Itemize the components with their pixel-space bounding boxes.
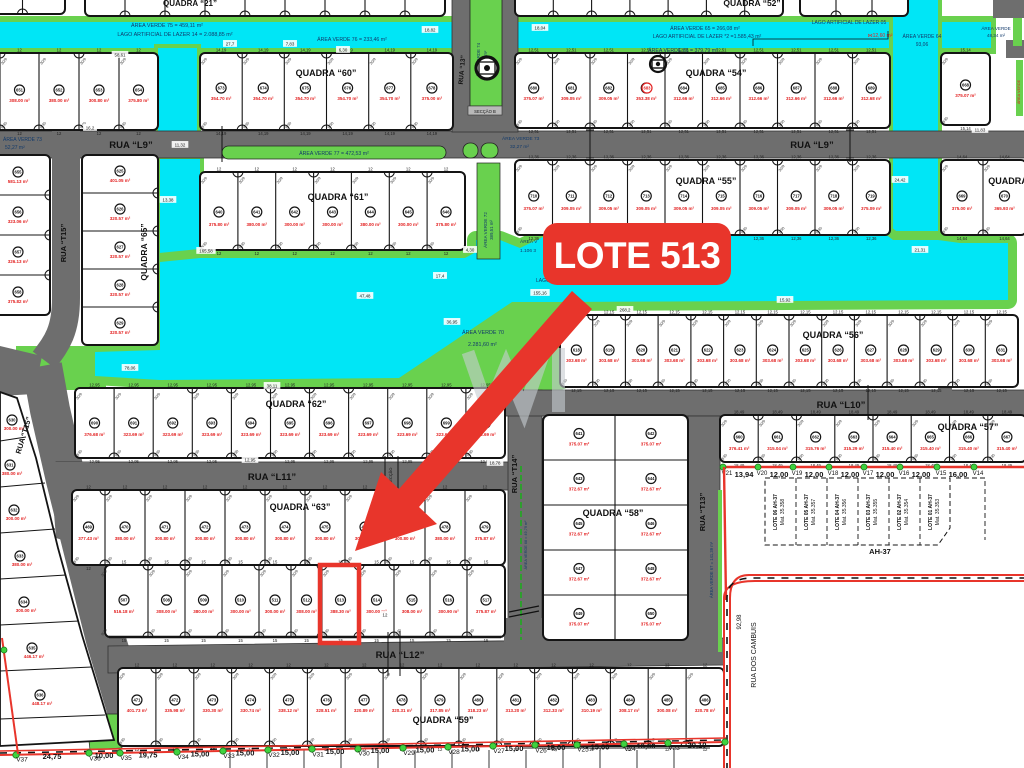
svg-text:308.17 m²: 308.17 m² [619, 708, 640, 713]
svg-text:58,61: 58,61 [115, 53, 127, 58]
svg-text:15: 15 [238, 638, 243, 643]
svg-text:625: 625 [802, 348, 810, 353]
svg-text:300.00 m²: 300.00 m² [322, 222, 343, 227]
svg-text:646: 646 [648, 521, 656, 526]
svg-text:380.00 m²: 380.00 m² [435, 536, 456, 541]
svg-text:323.69 m²: 323.69 m² [319, 432, 340, 437]
svg-text:QUADRA “52”: QUADRA “52” [723, 0, 780, 8]
svg-text:693: 693 [208, 421, 216, 426]
svg-text:155,16: 155,16 [533, 291, 547, 296]
svg-text:315.40 m²: 315.40 m² [997, 446, 1018, 451]
svg-text:12,51: 12,51 [754, 48, 765, 53]
svg-text:12: 12 [203, 485, 208, 490]
svg-text:323.69 m²: 323.69 m² [397, 432, 418, 437]
svg-text:12: 12 [665, 663, 670, 668]
svg-text:303.68 m²: 303.68 m² [828, 358, 849, 363]
svg-text:LAGO ARTIFICIAL DE LAZER *2 =1: LAGO ARTIFICIAL DE LAZER *2 =1.585,43 m² [653, 34, 762, 40]
svg-text:300.80 m²: 300.80 m² [315, 536, 336, 541]
svg-text:QUADRA “57”: QUADRA “57” [938, 422, 999, 432]
svg-text:643: 643 [329, 210, 337, 215]
svg-text:479: 479 [436, 698, 444, 703]
svg-text:312.33 m²: 312.33 m² [543, 708, 564, 713]
svg-text:644: 644 [648, 476, 656, 481]
svg-text:372.67 m²: 372.67 m² [569, 532, 590, 537]
svg-text:12,95: 12,95 [128, 459, 139, 464]
svg-text:12: 12 [324, 663, 329, 668]
svg-text:303.68 m²: 303.68 m² [762, 358, 783, 363]
svg-text:12,15: 12,15 [964, 388, 975, 393]
svg-text:470: 470 [122, 525, 130, 530]
svg-text:681: 681 [568, 86, 576, 91]
svg-text:12: 12 [57, 131, 62, 136]
svg-text:300.80 m²: 300.80 m² [235, 536, 256, 541]
svg-text:517: 517 [483, 598, 491, 603]
svg-text:12,36: 12,36 [791, 155, 802, 160]
svg-text:372.67 m²: 372.67 m² [641, 577, 662, 582]
svg-text:12,15: 12,15 [800, 310, 811, 315]
svg-text:635: 635 [29, 646, 37, 651]
svg-text:300.80 m²: 300.80 m² [155, 536, 176, 541]
svg-text:300.00 m²: 300.00 m² [230, 609, 251, 614]
svg-text:12,36: 12,36 [866, 236, 877, 241]
svg-text:641: 641 [576, 431, 584, 436]
svg-text:12: 12 [217, 167, 222, 172]
svg-text:716: 716 [755, 194, 763, 199]
svg-text:12: 12 [627, 663, 632, 668]
svg-text:18,49: 18,49 [734, 410, 745, 415]
svg-text:320.57 m²: 320.57 m² [110, 216, 131, 221]
svg-text:12: 12 [17, 48, 22, 53]
svg-text:Mat. 35.355: Mat. 35.355 [873, 499, 879, 526]
svg-text:309.05 m²: 309.05 m² [748, 206, 769, 211]
svg-text:718: 718 [830, 194, 838, 199]
svg-text:472: 472 [171, 698, 179, 703]
svg-text:365.93 m²: 365.93 m² [994, 206, 1015, 211]
svg-text:10,00: 10,00 [95, 751, 114, 760]
svg-text:683: 683 [644, 86, 652, 91]
svg-text:315.40 m²: 315.40 m² [882, 446, 903, 451]
svg-text:713: 713 [643, 194, 651, 199]
svg-text:300.80 m²: 300.80 m² [89, 98, 110, 103]
svg-text:309.05 m²: 309.05 m² [711, 206, 732, 211]
svg-text:632: 632 [11, 508, 19, 513]
svg-text:645: 645 [405, 210, 413, 215]
svg-text:315.04 m²: 315.04 m² [767, 446, 788, 451]
svg-text:15: 15 [164, 560, 169, 565]
svg-text:323.69 m²: 323.69 m² [123, 432, 144, 437]
svg-text:375.87 m²: 375.87 m² [476, 609, 497, 614]
svg-text:485: 485 [664, 698, 672, 703]
svg-text:12,95: 12,95 [168, 383, 179, 388]
svg-text:V24: V24 [624, 746, 636, 753]
svg-text:653: 653 [96, 88, 104, 93]
svg-text:12,51: 12,51 [866, 129, 877, 134]
svg-text:12,95: 12,95 [402, 459, 413, 464]
svg-text:513: 513 [337, 598, 345, 603]
svg-text:677: 677 [386, 86, 394, 91]
svg-text:380.00 m²: 380.00 m² [2, 471, 23, 476]
svg-text:15,14: 15,14 [960, 48, 971, 53]
svg-text:512: 512 [303, 598, 311, 603]
svg-text:18,49: 18,49 [925, 410, 936, 415]
svg-text:328.51 m²: 328.51 m² [316, 708, 337, 713]
svg-text:V31: V31 [312, 751, 324, 758]
svg-text:V32: V32 [268, 752, 280, 759]
svg-text:630: 630 [965, 348, 973, 353]
svg-text:12: 12 [57, 48, 62, 53]
svg-text:15: 15 [304, 560, 309, 565]
svg-text:12: 12 [254, 251, 259, 256]
svg-text:482: 482 [550, 698, 558, 703]
svg-text:⋈12,60 m²: ⋈12,60 m² [868, 33, 893, 39]
svg-text:308.00 m²: 308.00 m² [296, 609, 317, 614]
svg-text:338.12 m²: 338.12 m² [278, 708, 299, 713]
svg-text:690: 690 [91, 421, 99, 426]
svg-text:323.69 m²: 323.69 m² [202, 432, 223, 437]
svg-text:15: 15 [122, 560, 127, 565]
svg-text:12: 12 [286, 663, 291, 668]
svg-text:12,36: 12,36 [866, 155, 877, 160]
svg-text:V23: V23 [668, 745, 680, 752]
svg-text:12,51: 12,51 [866, 48, 877, 53]
svg-text:388.30 m²: 388.30 m² [330, 609, 351, 614]
svg-text:688: 688 [830, 86, 838, 91]
svg-text:655: 655 [15, 170, 23, 175]
svg-text:12: 12 [163, 485, 168, 490]
svg-text:12: 12 [362, 663, 367, 668]
svg-text:12: 12 [330, 167, 335, 172]
svg-text:665: 665 [927, 435, 935, 440]
svg-text:12: 12 [406, 167, 411, 172]
svg-text:656: 656 [15, 210, 23, 215]
svg-text:92,98: 92,98 [737, 614, 743, 630]
svg-text:14,19: 14,19 [300, 48, 311, 53]
svg-text:V17: V17 [863, 471, 874, 477]
svg-text:12,15: 12,15 [767, 310, 778, 315]
svg-text:12,15: 12,15 [833, 310, 844, 315]
svg-text:509: 509 [200, 598, 208, 603]
svg-text:12: 12 [330, 251, 335, 256]
svg-text:12,15: 12,15 [735, 310, 746, 315]
svg-text:320.57 m²: 320.57 m² [110, 254, 131, 259]
svg-text:12,36: 12,36 [829, 236, 840, 241]
svg-text:QUADRA “56”: QUADRA “56” [803, 330, 864, 340]
svg-text:669: 669 [959, 194, 967, 199]
svg-text:474: 474 [282, 525, 290, 530]
svg-text:14,19: 14,19 [216, 48, 227, 53]
svg-text:712: 712 [605, 194, 613, 199]
svg-text:12: 12 [383, 613, 388, 618]
svg-text:12,15: 12,15 [866, 310, 877, 315]
svg-text:15,00: 15,00 [191, 749, 210, 758]
svg-text:18,78: 18,78 [490, 461, 502, 466]
svg-text:12,51: 12,51 [529, 129, 540, 134]
svg-text:Mat. 35.354: Mat. 35.354 [904, 499, 910, 526]
svg-text:12,36: 12,36 [641, 155, 652, 160]
svg-text:643: 643 [576, 476, 584, 481]
svg-text:12,15: 12,15 [669, 310, 680, 315]
svg-text:480: 480 [474, 698, 482, 703]
svg-text:LOTE 513: LOTE 513 [554, 235, 721, 276]
svg-text:QUADRA “62”: QUADRA “62” [266, 399, 327, 409]
svg-text:QUADRA “59”: QUADRA “59” [413, 715, 474, 725]
svg-text:12,95: 12,95 [128, 383, 139, 388]
svg-text:14,19: 14,19 [427, 131, 438, 136]
svg-text:12,00: 12,00 [770, 470, 789, 479]
svg-text:628: 628 [117, 283, 125, 288]
svg-text:12: 12 [400, 663, 405, 668]
svg-text:15: 15 [201, 560, 206, 565]
svg-text:663: 663 [850, 435, 858, 440]
svg-text:315.29 m²: 315.29 m² [844, 446, 865, 451]
svg-text:RUA “T15”: RUA “T15” [59, 224, 68, 263]
svg-text:12,36: 12,36 [829, 155, 840, 160]
svg-text:15,00: 15,00 [416, 745, 435, 754]
svg-text:RUA “T14”: RUA “T14” [510, 455, 519, 494]
svg-text:12: 12 [217, 251, 222, 256]
svg-text:516: 516 [445, 598, 453, 603]
svg-text:12,36: 12,36 [679, 155, 690, 160]
svg-text:323.69 m²: 323.69 m² [280, 432, 301, 437]
svg-text:620: 620 [638, 348, 646, 353]
svg-text:483: 483 [588, 698, 596, 703]
svg-text:354.70 m²: 354.70 m² [379, 96, 400, 101]
svg-text:15,00: 15,00 [505, 744, 524, 753]
svg-text:642: 642 [648, 431, 656, 436]
svg-text:12,15: 12,15 [669, 388, 680, 393]
svg-text:474: 474 [247, 698, 255, 703]
svg-text:354.70 m²: 354.70 m² [295, 96, 316, 101]
svg-text:309.05 m²: 309.05 m² [823, 206, 844, 211]
svg-text:310.19 m²: 310.19 m² [581, 708, 602, 713]
svg-text:QUADRA “54”: QUADRA “54” [686, 68, 747, 78]
svg-text:312.66 m²: 312.66 m² [823, 96, 844, 101]
svg-text:12,51: 12,51 [566, 129, 577, 134]
svg-text:12,95: 12,95 [363, 383, 374, 388]
svg-text:654: 654 [135, 88, 143, 93]
svg-text:312.68 m²: 312.68 m² [861, 96, 882, 101]
svg-text:V34: V34 [177, 754, 189, 761]
svg-text:516.18 m²: 516.18 m² [114, 609, 135, 614]
svg-text:309.05 m²: 309.05 m² [636, 206, 657, 211]
svg-text:626: 626 [117, 207, 125, 212]
svg-text:375.07 m²: 375.07 m² [569, 442, 590, 447]
svg-text:18,82: 18,82 [425, 28, 437, 33]
svg-text:380.00 m²: 380.00 m² [115, 536, 136, 541]
svg-text:12,95: 12,95 [245, 458, 257, 463]
svg-text:650: 650 [648, 611, 656, 616]
svg-text:12,36: 12,36 [529, 155, 540, 160]
svg-text:12,95: 12,95 [324, 383, 335, 388]
svg-text:12,51: 12,51 [754, 129, 765, 134]
svg-text:664: 664 [889, 435, 897, 440]
svg-text:303.68 m²: 303.68 m² [860, 358, 881, 363]
svg-text:78,06: 78,06 [125, 366, 137, 371]
svg-text:475: 475 [285, 698, 293, 703]
svg-text:V37: V37 [16, 757, 28, 764]
svg-text:12,36: 12,36 [716, 155, 727, 160]
svg-text:660: 660 [736, 435, 744, 440]
svg-text:18,49: 18,49 [1002, 410, 1013, 415]
svg-text:15: 15 [484, 560, 489, 565]
svg-text:ÁREA VERDE 68 = 49,79 m²: ÁREA VERDE 68 = 49,79 m² [524, 520, 528, 570]
svg-text:309.05 m²: 309.05 m² [561, 206, 582, 211]
svg-text:312.66 m²: 312.66 m² [711, 96, 732, 101]
svg-text:326.13 m²: 326.13 m² [8, 259, 29, 264]
svg-text:697: 697 [365, 421, 373, 426]
svg-text:303.68 m²: 303.68 m² [631, 358, 652, 363]
svg-text:12,00: 12,00 [841, 470, 860, 479]
svg-text:682: 682 [605, 86, 613, 91]
svg-text:15,00: 15,00 [236, 749, 255, 758]
svg-text:315.76 m²: 315.76 m² [805, 446, 826, 451]
svg-text:52,27 m²: 52,27 m² [5, 145, 25, 151]
svg-text:12,00: 12,00 [805, 470, 824, 479]
svg-text:12: 12 [703, 663, 708, 668]
svg-text:640: 640 [215, 210, 223, 215]
svg-text:12,15: 12,15 [604, 310, 615, 315]
svg-text:687: 687 [793, 86, 801, 91]
svg-text:375.07 m²: 375.07 m² [955, 93, 976, 98]
svg-text:377.43 m²: 377.43 m² [78, 536, 99, 541]
svg-text:V30: V30 [358, 751, 370, 758]
svg-text:12: 12 [483, 485, 488, 490]
svg-text:300.00 m²: 300.00 m² [398, 222, 419, 227]
svg-text:47,48: 47,48 [360, 294, 372, 299]
svg-text:508: 508 [163, 598, 171, 603]
svg-text:QUADRA “65”: QUADRA “65” [139, 223, 149, 280]
svg-text:6,30: 6,30 [339, 48, 348, 53]
svg-text:Mat. 35.357: Mat. 35.357 [811, 499, 817, 526]
svg-text:ÁREA VERDE: ÁREA VERDE [1017, 79, 1021, 104]
svg-text:ÁREA VERDE 75 = 459,11 m²: ÁREA VERDE 75 = 459,11 m² [131, 22, 203, 29]
svg-text:LAGO ARTIFICIAL DE LAZER 14 =: LAGO ARTIFICIAL DE LAZER 14 = 2.088,85 m… [117, 32, 232, 38]
svg-text:631: 631 [7, 463, 15, 468]
svg-text:V27: V27 [493, 748, 505, 755]
svg-text:300.00 m²: 300.00 m² [265, 609, 286, 614]
svg-text:648: 648 [648, 566, 656, 571]
svg-text:12: 12 [444, 251, 449, 256]
svg-text:309.05 m²: 309.05 m² [673, 206, 694, 211]
svg-text:312.66 m²: 312.66 m² [786, 96, 807, 101]
svg-text:12: 12 [476, 663, 481, 668]
svg-text:473: 473 [209, 698, 217, 703]
svg-text:15,00: 15,00 [637, 741, 656, 750]
svg-text:12,00: 12,00 [876, 470, 895, 479]
svg-text:715: 715 [718, 194, 726, 199]
svg-text:300.80 m²: 300.80 m² [275, 536, 296, 541]
svg-text:315.40 m²: 315.40 m² [920, 446, 941, 451]
svg-text:303.68 m²: 303.68 m² [893, 358, 914, 363]
svg-text:15: 15 [273, 638, 278, 643]
svg-text:ÁREA VERDE 65 = 266,08 m²: ÁREA VERDE 65 = 266,08 m² [670, 25, 740, 32]
svg-text:657: 657 [15, 250, 23, 255]
svg-text:14,19: 14,19 [300, 131, 311, 136]
svg-text:14,19: 14,19 [385, 48, 396, 53]
svg-text:678: 678 [428, 86, 436, 91]
svg-text:630: 630 [9, 418, 17, 423]
svg-text:300.80 m²: 300.80 m² [195, 536, 216, 541]
svg-text:375.00 m²: 375.00 m² [952, 206, 973, 211]
svg-text:469: 469 [85, 525, 93, 530]
svg-text:303.68 m²: 303.68 m² [959, 358, 980, 363]
svg-text:12,15: 12,15 [996, 388, 1007, 393]
svg-text:Mat. 35.356: Mat. 35.356 [842, 499, 848, 526]
svg-text:479: 479 [482, 525, 490, 530]
svg-text:13,94: 13,94 [735, 470, 755, 479]
svg-text:12,95: 12,95 [285, 383, 296, 388]
svg-text:372.67 m²: 372.67 m² [569, 577, 590, 582]
svg-text:12,15: 12,15 [833, 388, 844, 393]
svg-text:478: 478 [442, 525, 450, 530]
svg-text:622: 622 [704, 348, 712, 353]
svg-text:ÁREA VERDE 73: ÁREA VERDE 73 [3, 136, 42, 143]
svg-text:303.68 m²: 303.68 m² [926, 358, 947, 363]
svg-text:320.78 m²: 320.78 m² [695, 708, 716, 713]
svg-text:15: 15 [238, 560, 243, 565]
svg-text:12,51: 12,51 [566, 48, 577, 53]
svg-text:12,36: 12,36 [791, 236, 802, 241]
svg-text:15: 15 [201, 638, 206, 643]
svg-text:448.17 m²: 448.17 m² [32, 701, 53, 706]
svg-text:12: 12 [363, 485, 368, 490]
svg-text:323.06 m²: 323.06 m² [8, 219, 29, 224]
svg-text:309.05 m²: 309.05 m² [598, 96, 619, 101]
svg-text:14,19: 14,19 [385, 131, 396, 136]
svg-text:Mat. 35.353: Mat. 35.353 [935, 499, 941, 526]
svg-text:12,95: 12,95 [207, 383, 218, 388]
svg-text:12,51: 12,51 [791, 48, 802, 53]
svg-text:27,7: 27,7 [226, 42, 235, 47]
svg-text:719: 719 [868, 194, 876, 199]
svg-text:471: 471 [162, 525, 170, 530]
svg-text:12,15: 12,15 [735, 388, 746, 393]
svg-text:15,00: 15,00 [461, 745, 480, 754]
svg-text:ÁREA VERDE 67 = 141,39 m²: ÁREA VERDE 67 = 141,39 m² [709, 541, 714, 598]
svg-text:12,51: 12,51 [604, 129, 615, 134]
svg-text:RUA “L9”: RUA “L9” [109, 140, 153, 151]
svg-text:380.00 m²: 380.00 m² [247, 222, 268, 227]
svg-text:QUADRA “61”: QUADRA “61” [308, 192, 369, 202]
svg-text:21,31: 21,31 [915, 248, 927, 253]
svg-text:710: 710 [530, 194, 538, 199]
svg-text:473: 473 [242, 525, 250, 530]
svg-text:24,75: 24,75 [43, 752, 62, 761]
svg-text:268,2: 268,2 [620, 308, 632, 313]
svg-text:12,15: 12,15 [996, 310, 1007, 315]
svg-text:15: 15 [374, 560, 379, 565]
svg-text:12,15: 12,15 [767, 388, 778, 393]
svg-text:354.70 m²: 354.70 m² [337, 96, 358, 101]
svg-text:15,00: 15,00 [591, 742, 610, 751]
svg-text:717: 717 [793, 194, 801, 199]
svg-text:13,38: 13,38 [163, 198, 175, 203]
svg-text:12: 12 [292, 251, 297, 256]
svg-text:11,83: 11,83 [975, 128, 986, 133]
svg-text:380.00 m²: 380.00 m² [193, 609, 214, 614]
svg-text:12,00: 12,00 [912, 470, 931, 479]
svg-text:376.41 m²: 376.41 m² [729, 446, 750, 451]
svg-text:320.57 m²: 320.57 m² [110, 330, 131, 335]
svg-text:12,51: 12,51 [679, 129, 690, 134]
svg-text:12,95: 12,95 [89, 459, 100, 464]
svg-text:375.80 m²: 375.80 m² [128, 98, 149, 103]
svg-text:477: 477 [361, 698, 369, 703]
svg-text:12: 12 [444, 167, 449, 172]
svg-text:303.68 m²: 303.68 m² [795, 358, 816, 363]
svg-text:471: 471 [133, 698, 141, 703]
svg-text:303.68 m²: 303.68 m² [991, 358, 1012, 363]
